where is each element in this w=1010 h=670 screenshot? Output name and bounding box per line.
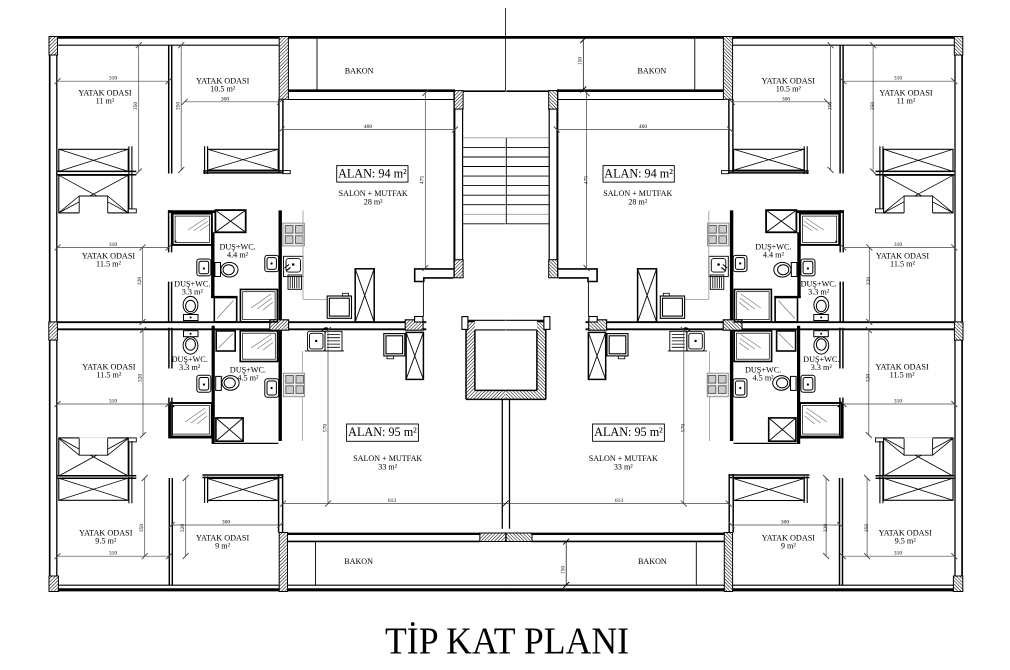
svg-text:150: 150	[578, 57, 584, 66]
svg-text:BAKON: BAKON	[638, 66, 667, 75]
svg-text:300: 300	[222, 520, 231, 526]
svg-text:310: 310	[109, 242, 118, 248]
svg-text:310: 310	[894, 399, 903, 405]
svg-text:11.5 m²: 11.5 m²	[96, 371, 121, 380]
svg-text:320: 320	[180, 524, 186, 533]
svg-text:350: 350	[139, 524, 145, 533]
svg-text:28 m²: 28 m²	[364, 197, 383, 206]
svg-text:11.5 m²: 11.5 m²	[890, 260, 915, 269]
svg-text:613: 613	[388, 498, 397, 504]
svg-text:BAKON: BAKON	[344, 557, 373, 566]
svg-text:10.5 m²: 10.5 m²	[210, 85, 236, 94]
svg-text:ALAN: 95 m²: ALAN: 95 m²	[348, 425, 417, 439]
svg-text:350: 350	[133, 102, 139, 111]
svg-text:4.5 m²: 4.5 m²	[237, 373, 259, 382]
svg-text:320: 320	[137, 374, 143, 383]
svg-text:475: 475	[420, 176, 426, 185]
svg-text:33 m²: 33 m²	[378, 462, 397, 471]
svg-text:ALAN: 94 m²: ALAN: 94 m²	[604, 166, 673, 180]
svg-text:310: 310	[109, 76, 118, 82]
svg-text:350: 350	[870, 102, 876, 111]
svg-text:4.4 m²: 4.4 m²	[763, 251, 785, 260]
svg-text:10.5 m²: 10.5 m²	[776, 85, 802, 94]
svg-text:320: 320	[866, 374, 872, 383]
svg-text:TİP KAT PLANI: TİP KAT PLANI	[385, 621, 629, 663]
svg-text:33 m²: 33 m²	[614, 462, 633, 471]
svg-text:320: 320	[137, 277, 143, 286]
svg-text:ALAN: 94 m²: ALAN: 94 m²	[338, 166, 407, 180]
svg-text:310: 310	[109, 399, 118, 405]
svg-text:570: 570	[681, 424, 687, 433]
svg-text:4.5 m²: 4.5 m²	[753, 373, 775, 382]
svg-text:320: 320	[823, 524, 829, 533]
svg-text:4.4 m²: 4.4 m²	[227, 251, 249, 260]
svg-text:BAKON: BAKON	[638, 557, 667, 566]
svg-text:11.5 m²: 11.5 m²	[890, 371, 915, 380]
svg-text:320: 320	[866, 277, 872, 286]
svg-text:310: 310	[894, 551, 903, 557]
svg-text:9.5 m²: 9.5 m²	[95, 537, 117, 546]
svg-text:BAKON: BAKON	[345, 66, 374, 75]
svg-text:350: 350	[864, 524, 870, 533]
svg-text:350: 350	[176, 102, 182, 111]
svg-text:310: 310	[894, 242, 903, 248]
svg-text:350: 350	[828, 102, 834, 111]
svg-text:460: 460	[364, 124, 373, 130]
svg-text:613: 613	[615, 498, 624, 504]
svg-text:9.5 m²: 9.5 m²	[895, 537, 917, 546]
svg-text:150: 150	[560, 566, 566, 575]
svg-text:3.3 m²: 3.3 m²	[182, 288, 204, 297]
svg-text:300: 300	[782, 96, 791, 102]
svg-text:ALAN: 95 m²: ALAN: 95 m²	[594, 425, 663, 439]
svg-text:11.5 m²: 11.5 m²	[96, 260, 121, 269]
svg-text:460: 460	[639, 124, 648, 130]
svg-text:11 m²: 11 m²	[897, 96, 916, 105]
svg-text:300: 300	[781, 520, 790, 526]
svg-text:310: 310	[109, 551, 118, 557]
svg-text:9 m²: 9 m²	[781, 542, 797, 551]
svg-text:3.3 m²: 3.3 m²	[811, 363, 833, 372]
svg-text:3.3 m²: 3.3 m²	[179, 363, 201, 372]
svg-text:300: 300	[221, 96, 230, 102]
svg-text:570: 570	[322, 424, 328, 433]
svg-text:28 m²: 28 m²	[628, 197, 647, 206]
svg-text:475: 475	[584, 176, 590, 185]
svg-text:3.3 m²: 3.3 m²	[808, 288, 830, 297]
svg-text:9 m²: 9 m²	[215, 542, 231, 551]
svg-text:11 m²: 11 m²	[96, 96, 115, 105]
svg-text:310: 310	[894, 76, 903, 82]
